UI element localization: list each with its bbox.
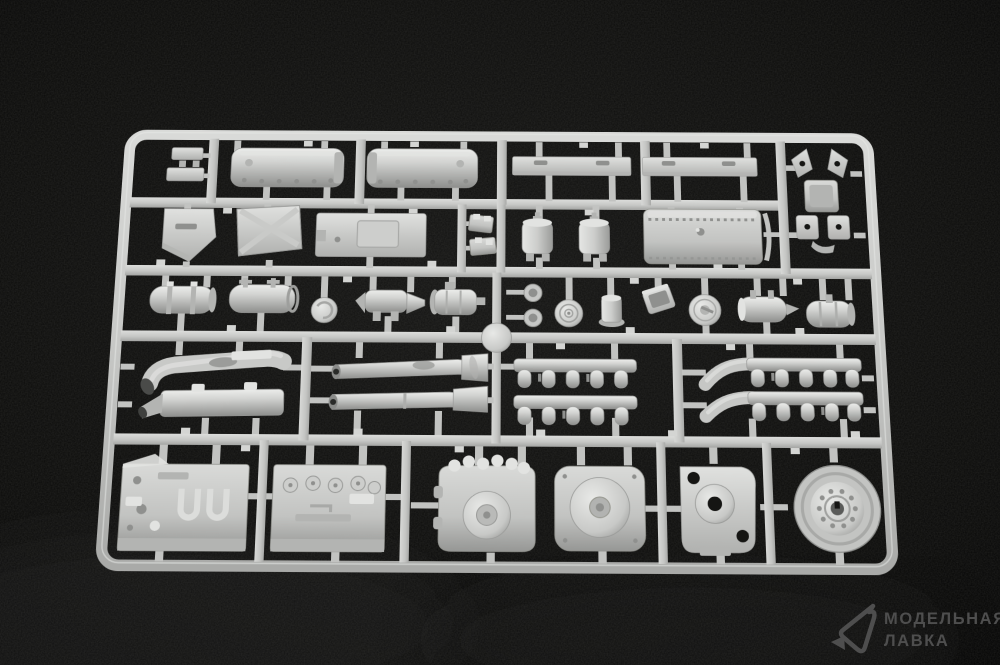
part-small-canister-1 — [522, 212, 553, 261]
part-cup-pair — [524, 284, 542, 327]
runner-v3 — [497, 140, 507, 205]
sprue-frame-wrap — [89, 126, 904, 583]
part-round-hatch — [689, 295, 722, 326]
part-cross-braced-box — [235, 205, 304, 256]
photo-scene: МОДЕЛЬНАЯ ЛАВКА — [0, 0, 1000, 665]
part-engine-timing-cover — [433, 454, 535, 551]
watermark-line1: МОДЕЛЬНАЯ — [884, 610, 1000, 628]
part-top-flat-bar-2 — [642, 157, 757, 176]
part-valve-cover-right — [366, 149, 477, 188]
part-muffler-box — [136, 382, 285, 421]
part-center-gate-disc — [481, 323, 511, 352]
part-tilted-cup — [641, 283, 675, 314]
part-engine-block-half-1 — [117, 454, 250, 552]
part-small-brackets — [166, 148, 205, 181]
part-compressor-1 — [737, 290, 800, 322]
part-intake-scoop — [161, 209, 217, 262]
part-radiator-box — [643, 209, 770, 264]
part-flanged-cylinder — [598, 295, 624, 328]
runner-center — [491, 273, 501, 444]
part-drive-wheel — [792, 465, 883, 552]
sprue — [89, 126, 904, 583]
part-engine-mount-bracket — [791, 149, 853, 254]
part-detail-cluster — [468, 214, 497, 256]
part-deck-plate — [315, 213, 426, 257]
part-final-drive-mount — [680, 467, 758, 556]
part-swirl-cap — [311, 297, 338, 322]
part-gearbox-cover — [555, 466, 646, 551]
part-top-flat-bar-1 — [513, 157, 631, 176]
part-small-canister-2 — [579, 213, 610, 262]
part-exhaust-manifold-4 — [705, 391, 864, 421]
watermark-line2: ЛАВКА — [884, 632, 949, 650]
runner-v2 — [354, 139, 366, 204]
part-exhaust-manifold-3 — [704, 358, 862, 387]
part-valve-cover-left — [230, 148, 344, 187]
part-pump-cylinder-2 — [430, 282, 486, 315]
part-exhaust-manifold-1 — [514, 359, 637, 388]
part-gun-barrel-1 — [331, 353, 488, 381]
part-ringed-disc — [555, 300, 583, 327]
part-gun-barrel-2 — [328, 386, 487, 413]
runner-v1 — [206, 139, 219, 204]
part-engine-block-half-2 — [270, 465, 386, 552]
